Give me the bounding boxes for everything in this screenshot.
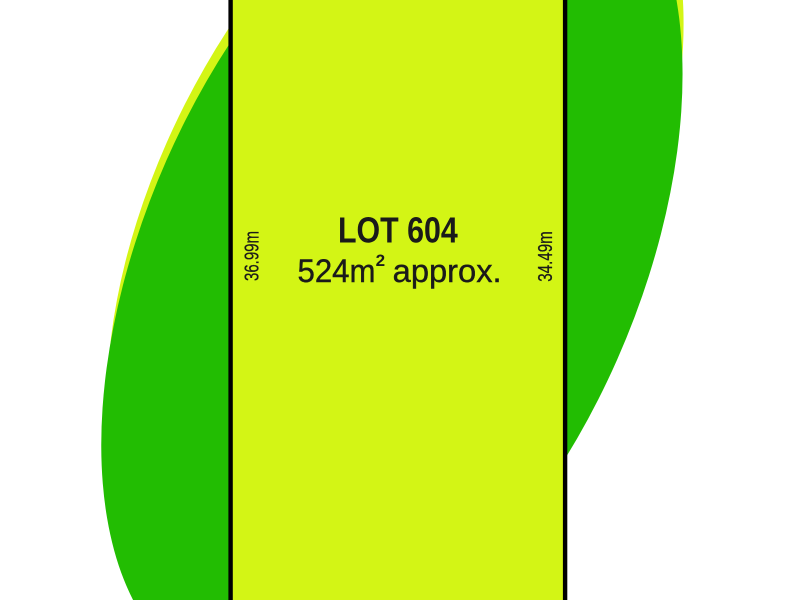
svg-text:LOT 604: LOT 604	[338, 211, 458, 251]
svg-text:2: 2	[376, 251, 386, 270]
svg-text:36.99m: 36.99m	[241, 231, 264, 281]
svg-text:524m: 524m	[298, 253, 376, 289]
svg-text:34.49m: 34.49m	[534, 231, 557, 282]
svg-text:approx.: approx.	[393, 253, 502, 289]
